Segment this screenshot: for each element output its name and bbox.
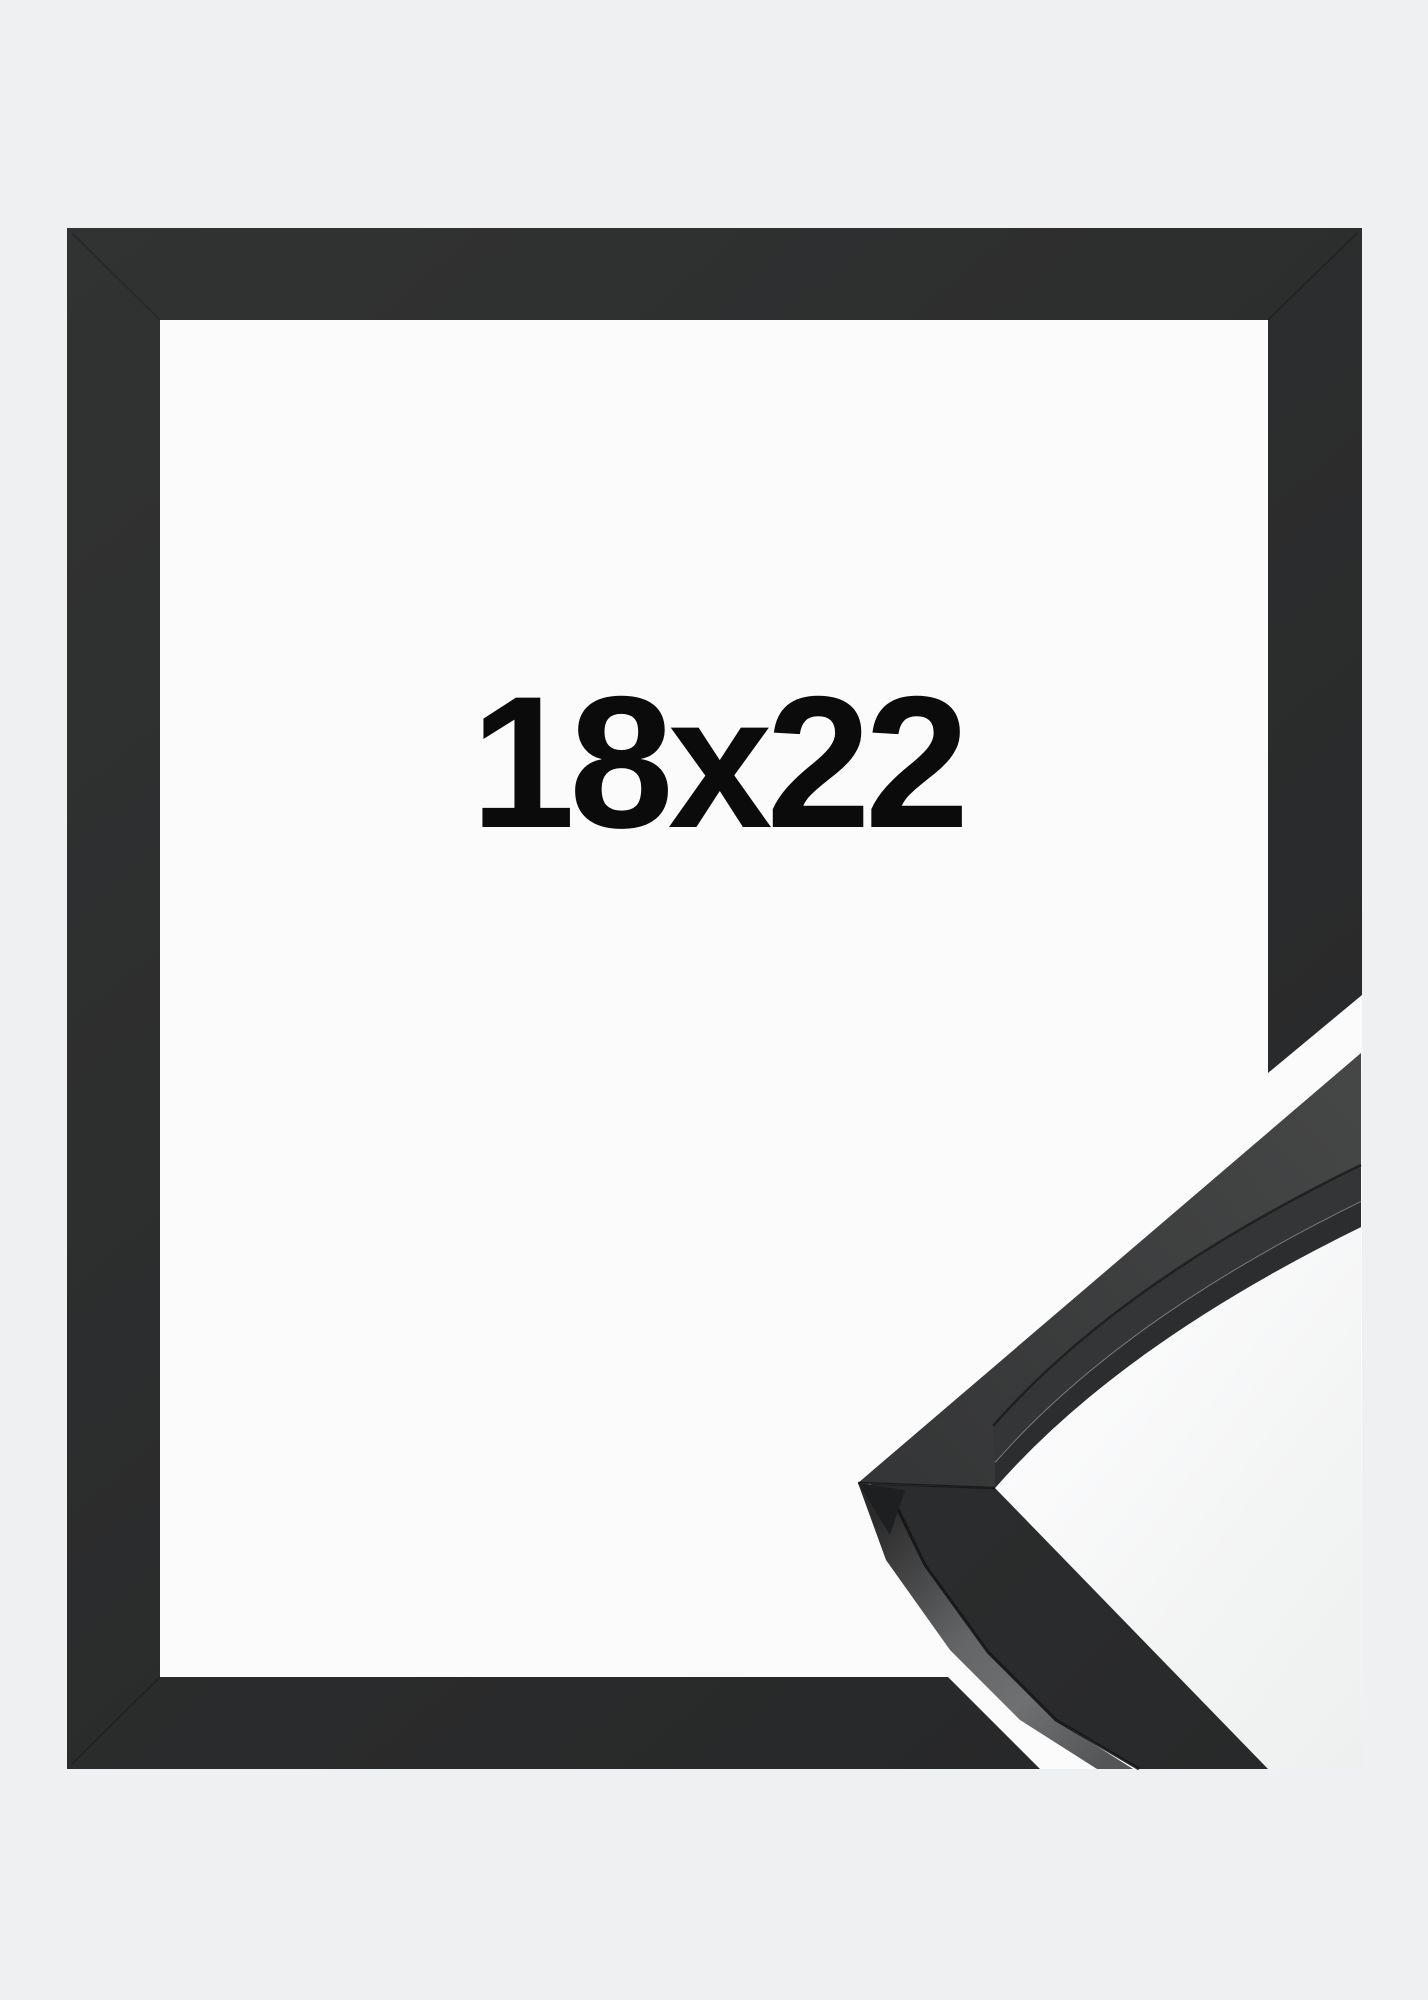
product-photo: 18x22 bbox=[0, 0, 1428, 2000]
frame-product-image: 18x22 bbox=[0, 0, 1428, 2000]
size-label: 18x22 bbox=[471, 657, 964, 867]
